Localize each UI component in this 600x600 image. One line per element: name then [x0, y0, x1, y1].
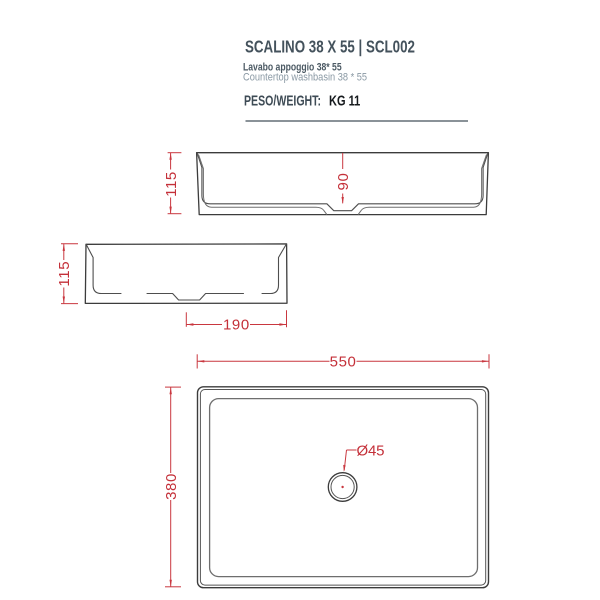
svg-text:PESO/WEIGHT:: PESO/WEIGHT: — [244, 93, 321, 109]
svg-text:190: 190 — [223, 317, 250, 334]
svg-text:Countertop washbasin 38 * 55: Countertop washbasin 38 * 55 — [243, 72, 367, 84]
svg-text:SCALINO 38 X 55 | SCL002: SCALINO 38 X 55 | SCL002 — [245, 38, 415, 57]
svg-text:Ø45: Ø45 — [357, 442, 385, 459]
svg-text:115: 115 — [56, 261, 73, 287]
svg-text:115: 115 — [163, 171, 180, 197]
svg-text:KG 11: KG 11 — [329, 92, 360, 109]
svg-text:90: 90 — [335, 173, 352, 191]
svg-text:380: 380 — [163, 473, 180, 500]
svg-text:550: 550 — [330, 354, 357, 371]
